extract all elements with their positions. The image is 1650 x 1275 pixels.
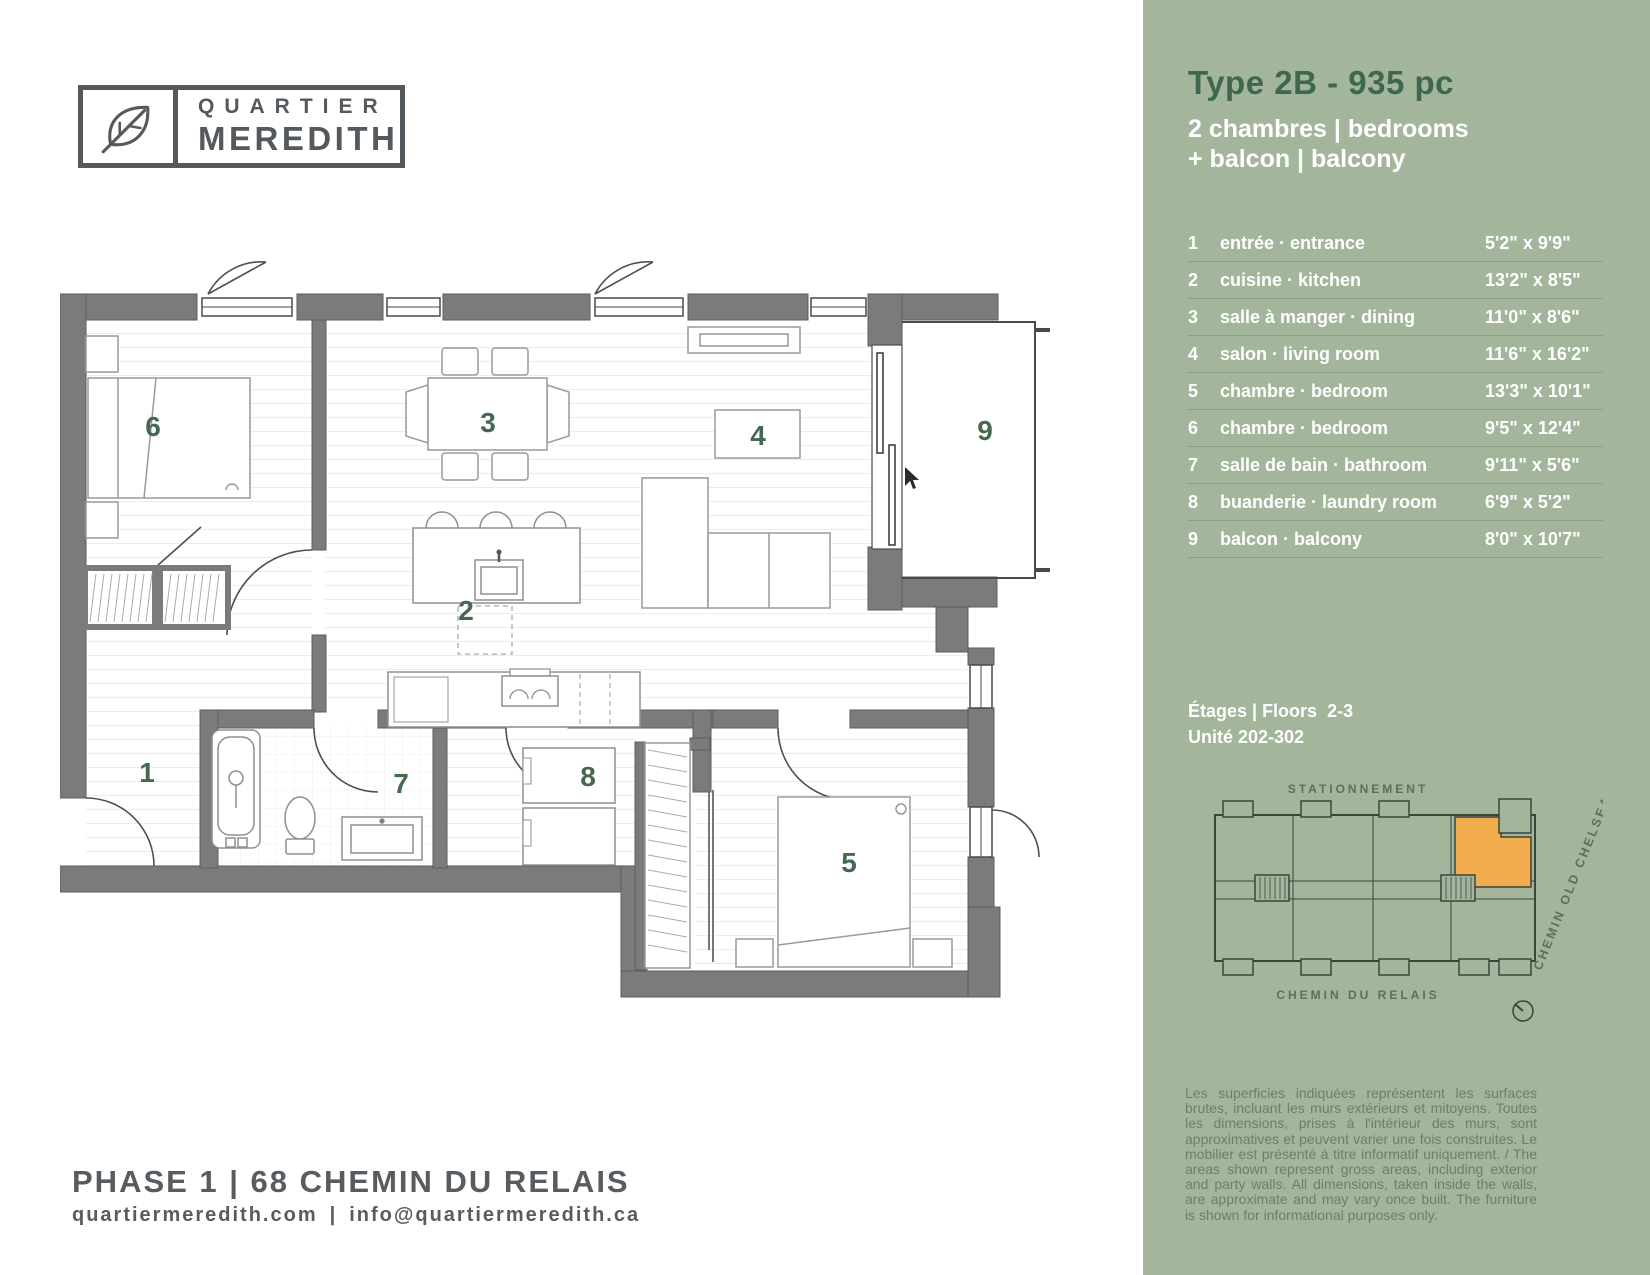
room-dimensions: 13'3" x 10'1"	[1485, 381, 1603, 402]
logo: QUARTIER MEREDITH	[78, 85, 405, 168]
sofa-icon	[642, 478, 708, 608]
room-number: 9	[1188, 529, 1220, 550]
unit-subtitle: 2 chambres | bedrooms + balcon | balcony	[1188, 114, 1469, 174]
room-label-8: 8	[580, 761, 596, 792]
room-number: 2	[1188, 270, 1220, 291]
footer-email: info@quartiermeredith.ca	[349, 1204, 640, 1226]
stove-icon	[502, 676, 558, 706]
room-number: 8	[1188, 492, 1220, 513]
room-name: salle à manger · dining	[1220, 307, 1485, 328]
footer-contact: quartiermeredith.com|info@quartiermeredi…	[72, 1204, 640, 1227]
unit-label: Unité 202-302	[1188, 727, 1304, 748]
room-dimensions: 9'11" x 5'6"	[1485, 455, 1603, 476]
room-name: chambre · bedroom	[1220, 418, 1485, 439]
street-label-bottom: CHEMIN DU RELAIS	[1276, 988, 1439, 1002]
key-plan: STATIONNEMENT	[1193, 775, 1603, 1025]
chair-icon	[492, 348, 528, 375]
table-row: 3 salle à manger · dining 11'0" x 8'6"	[1188, 299, 1603, 336]
room-dimensions: 11'6" x 16'2"	[1485, 344, 1603, 365]
nightstand-icon	[736, 939, 773, 967]
room-label-7: 7	[393, 768, 409, 799]
room-label-4: 4	[750, 420, 766, 451]
leaf-icon	[97, 96, 159, 158]
room-dimensions: 5'2" x 9'9"	[1485, 233, 1603, 254]
room-number: 5	[1188, 381, 1220, 402]
room-dimensions: 9'5" x 12'4"	[1485, 418, 1603, 439]
logo-brand-bottom: MEREDITH	[198, 120, 400, 158]
unit-type-title: Type 2B - 935 pc	[1188, 64, 1454, 102]
sidebar: Type 2B - 935 pc 2 chambres | bedrooms +…	[1143, 0, 1650, 1275]
table-row: 8 buanderie · laundry room 6'9" x 5'2"	[1188, 484, 1603, 521]
table-row: 4 salon · living room 11'6" x 16'2"	[1188, 336, 1603, 373]
room-name: cuisine · kitchen	[1220, 270, 1485, 291]
logo-text: QUARTIER MEREDITH	[178, 90, 400, 163]
room-number: 6	[1188, 418, 1220, 439]
logo-leaf-cell	[83, 90, 178, 163]
room-dimensions: 11'0" x 8'6"	[1485, 307, 1603, 328]
bed-icon	[88, 378, 250, 498]
chair-icon	[547, 385, 569, 443]
disclaimer-text: Les superficies indiquées représentent l…	[1185, 1086, 1537, 1223]
room-dimensions: 13'2" x 8'5"	[1485, 270, 1603, 291]
logo-brand-top: QUARTIER	[198, 95, 400, 119]
nightstand-icon	[86, 502, 118, 538]
chair-icon	[492, 453, 528, 480]
nightstand-icon	[86, 336, 118, 372]
chair-icon	[406, 385, 428, 443]
bed-icon	[778, 797, 910, 967]
room-dimensions: 6'9" x 5'2"	[1485, 492, 1603, 513]
table-row: 2 cuisine · kitchen 13'2" x 8'5"	[1188, 262, 1603, 299]
room-name: buanderie · laundry room	[1220, 492, 1485, 513]
compass-icon	[1513, 1001, 1533, 1021]
room-name: entrée · entrance	[1220, 233, 1485, 254]
floor-plan-drawing: 1 2 3 4 5 6 7 8 9	[60, 250, 1050, 1000]
room-name: salon · living room	[1220, 344, 1485, 365]
room-number: 4	[1188, 344, 1220, 365]
washer-icon	[523, 748, 615, 803]
room-name: balcon · balcony	[1220, 529, 1485, 550]
table-row: 7 salle de bain · bathroom 9'11" x 5'6"	[1188, 447, 1603, 484]
fridge-icon	[394, 677, 448, 722]
balcony-slider-door	[872, 345, 902, 549]
room-label-5: 5	[841, 847, 857, 878]
room-name: chambre · bedroom	[1220, 381, 1485, 402]
unit-subtitle-line2: + balcon | balcony	[1188, 144, 1469, 174]
chair-icon	[442, 348, 478, 375]
room-dimensions: 8'0" x 10'7"	[1485, 529, 1603, 550]
footer-address: PHASE 1 | 68 CHEMIN DU RELAIS	[72, 1164, 630, 1200]
room-label-1: 1	[139, 757, 155, 788]
street-label-right: CHEMIN OLD CHELSEA	[1531, 793, 1603, 972]
footer-separator: |	[330, 1204, 338, 1226]
floors-label: Étages | Floors 2-3	[1188, 701, 1353, 722]
room-number: 7	[1188, 455, 1220, 476]
room-number: 3	[1188, 307, 1220, 328]
street-label-top: STATIONNEMENT	[1288, 782, 1429, 796]
unit-subtitle-line1: 2 chambres | bedrooms	[1188, 114, 1469, 144]
footer-website: quartiermeredith.com	[72, 1204, 318, 1226]
table-row: 9 balcon · balcony 8'0" x 10'7"	[1188, 521, 1603, 558]
toilet-icon	[285, 797, 315, 839]
room-label-2: 2	[458, 595, 474, 626]
room-label-6: 6	[145, 411, 161, 442]
room-table: 1 entrée · entrance 5'2" x 9'9" 2 cuisin…	[1188, 225, 1603, 558]
floor-plan: 1 2 3 4 5 6 7 8 9	[60, 250, 1050, 1000]
room-label-9: 9	[977, 415, 993, 446]
nightstand-icon	[913, 939, 952, 967]
table-row: 6 chambre · bedroom 9'5" x 12'4"	[1188, 410, 1603, 447]
closets	[85, 568, 228, 627]
room-number: 1	[1188, 233, 1220, 254]
chair-icon	[442, 453, 478, 480]
room-label-3: 3	[480, 407, 496, 438]
table-row: 5 chambre · bedroom 13'3" x 10'1"	[1188, 373, 1603, 410]
room-name: salle de bain · bathroom	[1220, 455, 1485, 476]
table-row: 1 entrée · entrance 5'2" x 9'9"	[1188, 225, 1603, 262]
dryer-icon	[523, 808, 615, 865]
